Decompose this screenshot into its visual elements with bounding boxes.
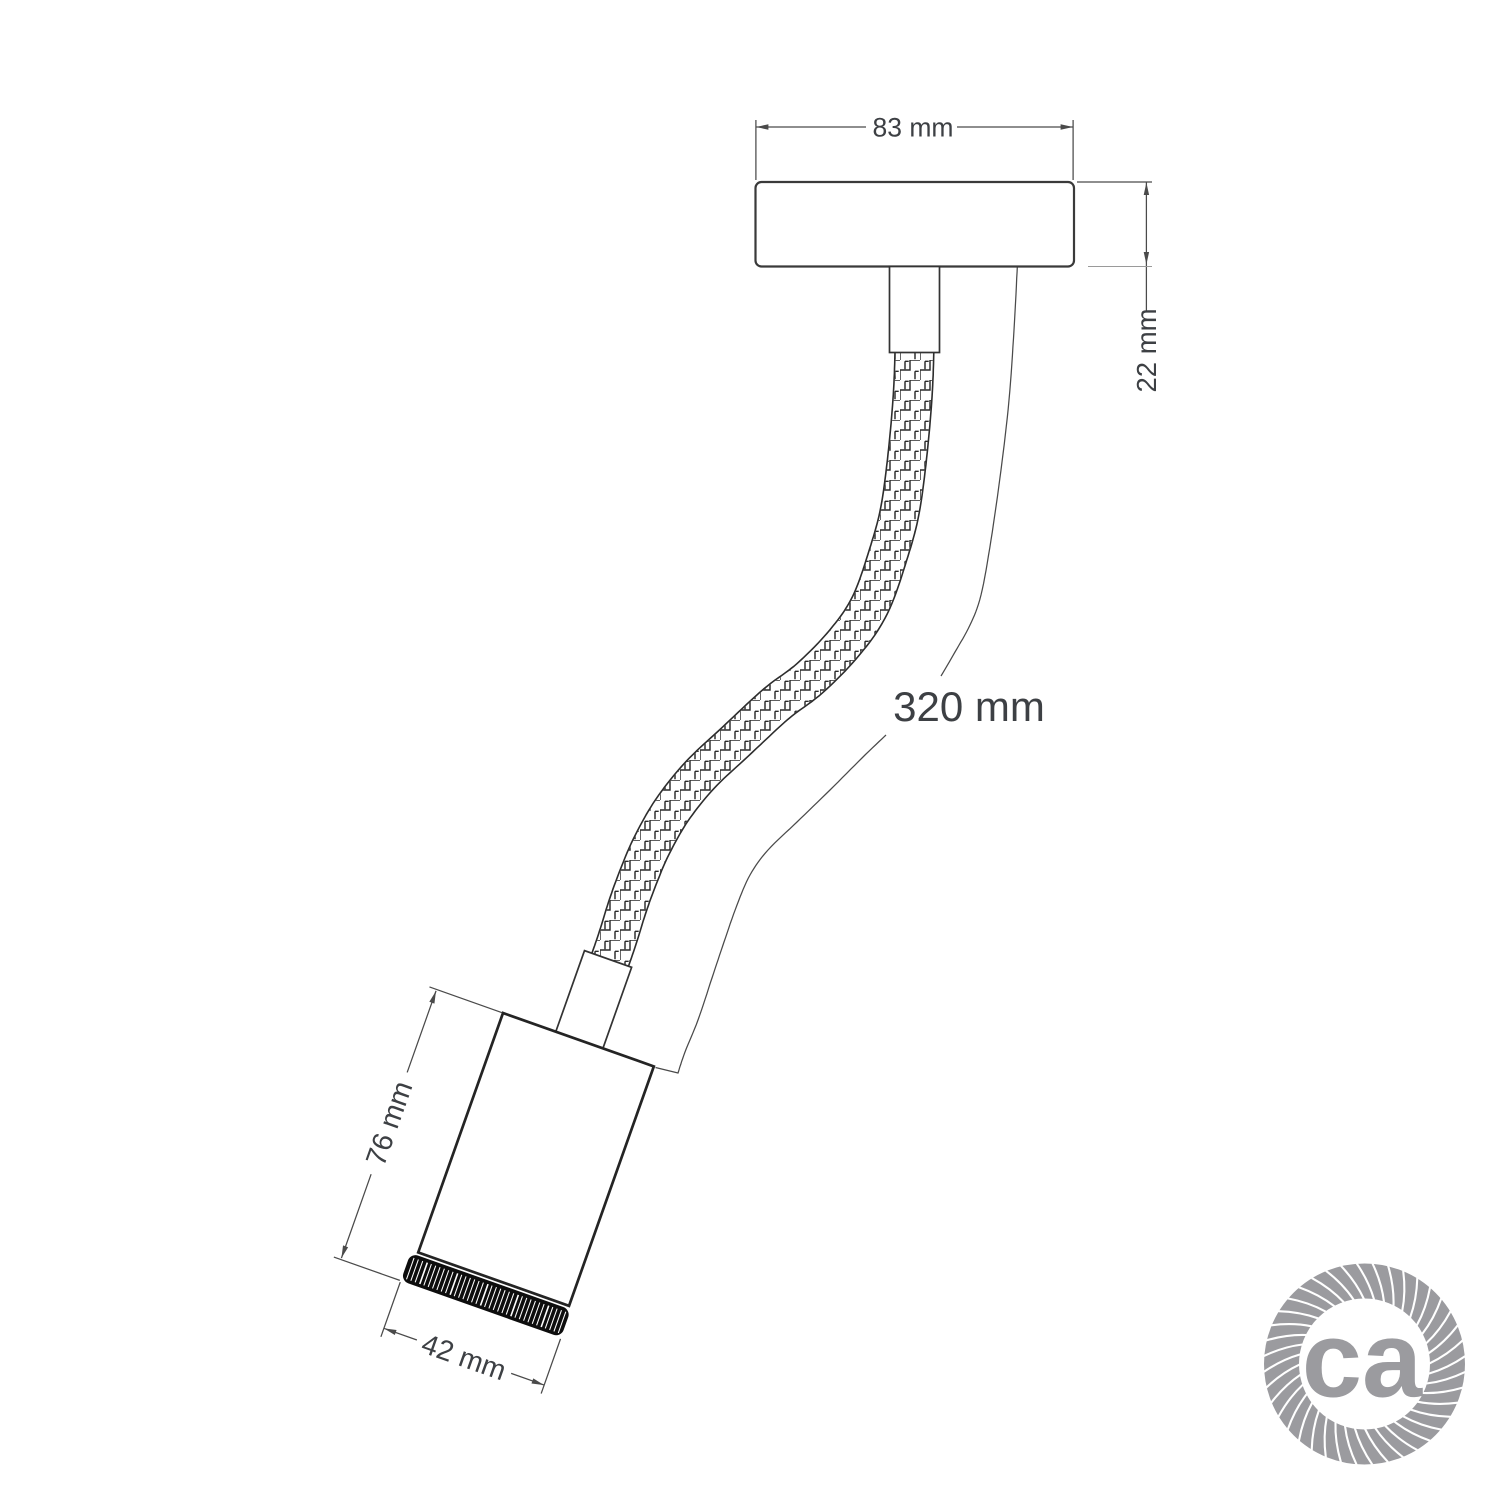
svg-text:83 mm: 83 mm xyxy=(873,112,954,142)
svg-text:22 mm: 22 mm xyxy=(1131,308,1162,392)
svg-text:320 mm: 320 mm xyxy=(893,683,1045,730)
svg-text:ca: ca xyxy=(1302,1299,1423,1420)
